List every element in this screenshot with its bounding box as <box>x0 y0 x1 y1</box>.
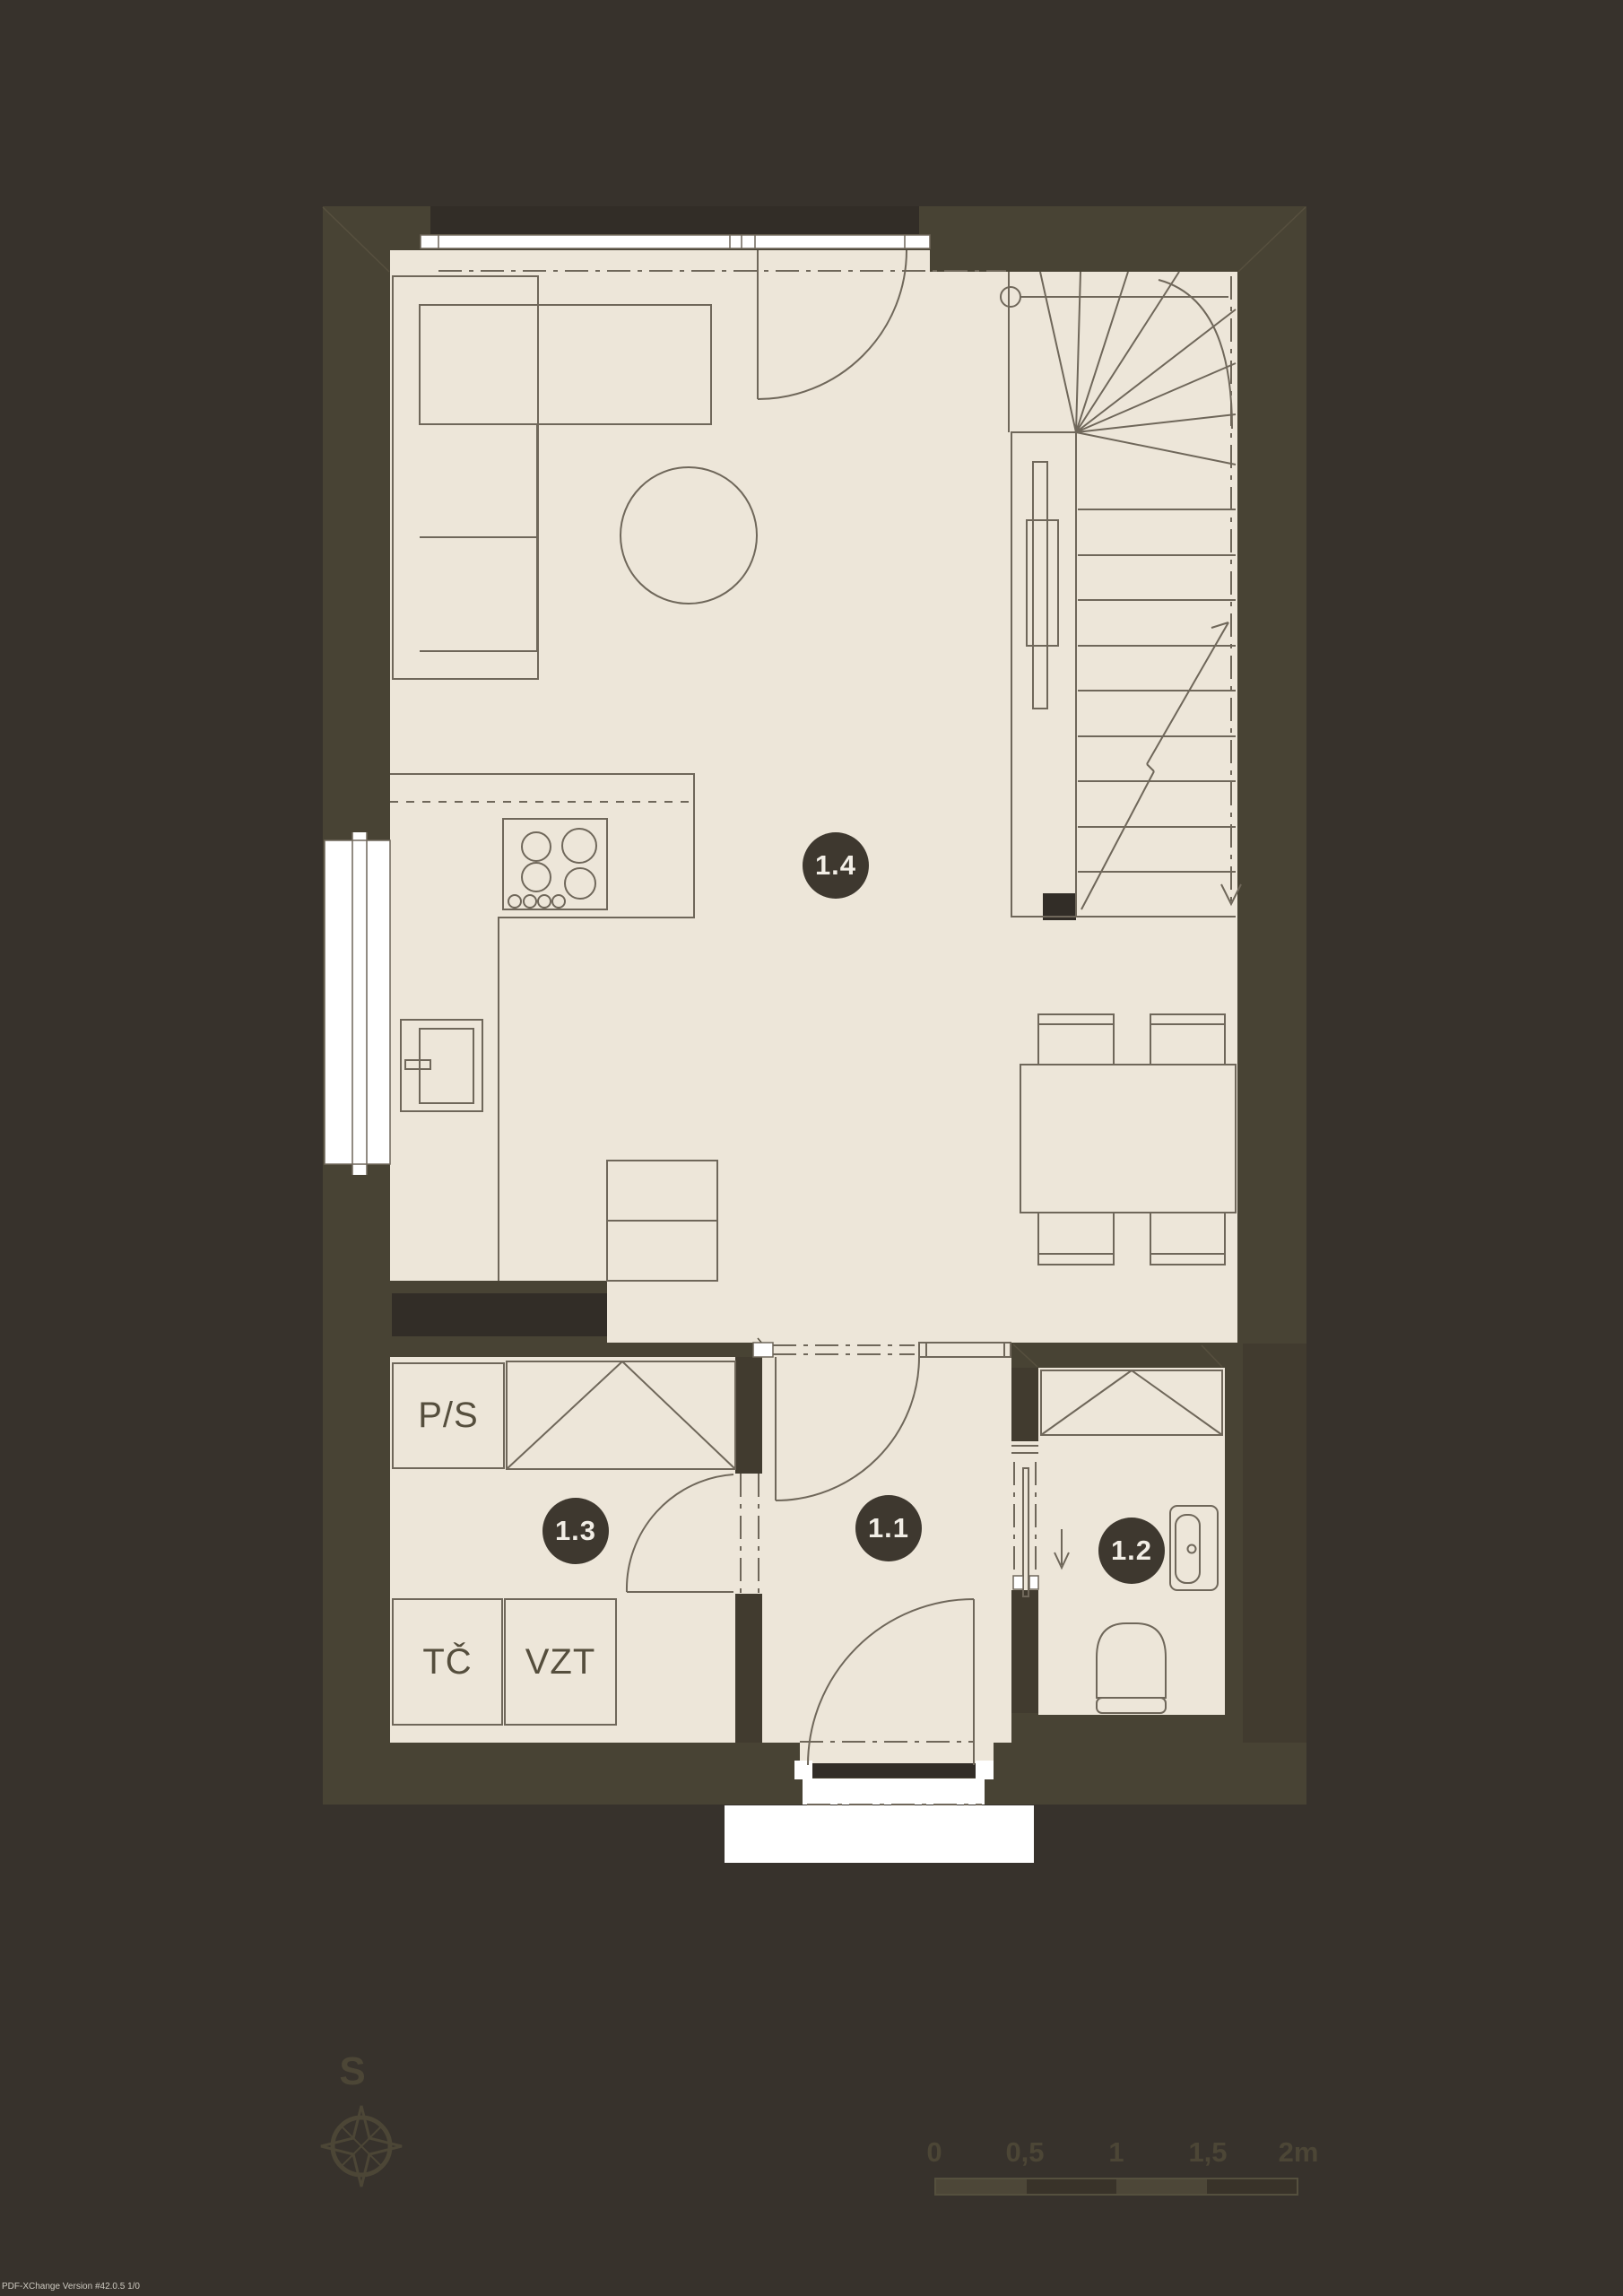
stair-newel <box>1001 287 1020 307</box>
floor-plan-canvas: 1.4 1.3 1.1 1.2 P/S TČ VZT S 0 0,5 1 1,5… <box>0 0 1623 2296</box>
stair-direction-line <box>1081 622 1228 909</box>
stair-handrail <box>1027 520 1058 646</box>
scale-bar-segments <box>934 2178 1298 2196</box>
dining-set <box>1020 1014 1236 1265</box>
stair-spine-wall <box>1011 432 1076 917</box>
coffee-table <box>621 467 757 604</box>
room-label-text: 1.1 <box>868 1512 909 1544</box>
scale-segment <box>1207 2179 1298 2194</box>
room-label-1.2: 1.2 <box>1098 1518 1165 1584</box>
room-label-1.1: 1.1 <box>855 1495 922 1561</box>
compass-rose-icon <box>321 2106 402 2187</box>
doors <box>627 250 1069 1765</box>
slope-arrow-icon <box>1055 1529 1069 1568</box>
scale-tick: 0,5 <box>1005 2136 1044 2169</box>
compass-north-label: S <box>317 2049 388 2094</box>
straight-treads <box>1011 509 1236 917</box>
tc-label: TČ <box>393 1599 502 1725</box>
winder-treads <box>1040 272 1236 465</box>
floor-plan-linework <box>0 0 1623 2296</box>
canopy-bar <box>430 206 919 234</box>
ps-label: P/S <box>393 1363 504 1468</box>
hall-door-swing <box>776 1357 919 1500</box>
wardrobe <box>507 1361 735 1469</box>
kitchen-counter <box>390 774 717 1281</box>
scale-segment <box>1116 2179 1207 2194</box>
terrace-door-swing <box>758 250 907 399</box>
stair-handrail <box>1033 462 1047 709</box>
watermark-text: PDF-XChange Version #42.0.5 1/0 <box>2 2282 140 2292</box>
scale-tick: 0 <box>926 2136 942 2169</box>
entry-threshold <box>812 1763 976 1778</box>
wood-stove <box>401 1020 482 1111</box>
sliding-door-leaf <box>1023 1468 1028 1596</box>
vzt-label: VZT <box>505 1599 616 1725</box>
sofa <box>393 276 711 679</box>
ps-label-text: P/S <box>418 1396 478 1436</box>
room-label-1.4: 1.4 <box>803 832 869 899</box>
stair-rail-curve <box>1159 280 1232 429</box>
toilet <box>1097 1623 1166 1698</box>
wall-black-fills <box>392 206 1076 1778</box>
scale-bar: 0 0,5 1 1,5 2m <box>934 2136 1298 2199</box>
scale-segment <box>1027 2179 1117 2194</box>
vzt-label-text: VZT <box>525 1642 596 1683</box>
dining-table <box>1020 1065 1236 1213</box>
tc-label-text: TČ <box>422 1642 472 1683</box>
wall-corner-joints <box>323 207 1306 1367</box>
utility-door-swing <box>627 1474 733 1592</box>
wall-bar <box>392 1293 607 1336</box>
wall-dark-fills <box>735 1344 1306 1743</box>
scale-tick: 2m <box>1279 2136 1319 2169</box>
compass-letter: S <box>339 2049 365 2093</box>
scale-tick: 1 <box>1108 2136 1124 2169</box>
entry-door-swing <box>808 1599 974 1765</box>
room-label-1.3: 1.3 <box>542 1498 609 1564</box>
bathroom-wardrobe <box>1041 1370 1222 1435</box>
room-label-text: 1.3 <box>555 1515 596 1547</box>
scale-tick: 1,5 <box>1188 2136 1227 2169</box>
staircase <box>1001 272 1241 917</box>
room-label-text: 1.2 <box>1111 1535 1152 1567</box>
room-label-text: 1.4 <box>815 849 856 882</box>
cooktop <box>503 819 607 909</box>
scale-segment <box>936 2179 1027 2194</box>
